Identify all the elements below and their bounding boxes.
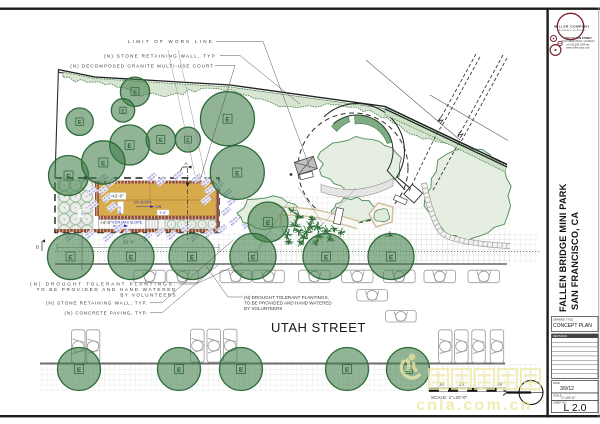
svg-text:FALLEN BRIDGE MINI PARK: FALLEN BRIDGE MINI PARK <box>558 183 568 312</box>
svg-text:www.millercomp.com: www.millercomp.com <box>566 47 589 50</box>
svg-text:(N) STONE RETAINING WALL, TYP.: (N) STONE RETAINING WALL, TYP. <box>104 54 218 59</box>
svg-text:E: E <box>68 254 73 261</box>
svg-text:16'-6": 16'-6" <box>118 205 122 215</box>
svg-text:3/9/12: 3/9/12 <box>560 386 574 392</box>
svg-text:1'-6": 1'-6" <box>159 211 167 215</box>
svg-text:4.5% MAX SLOPE: 4.5% MAX SLOPE <box>112 221 143 225</box>
svg-text:TO BE PROVIDED AND HAND WATERE: TO BE PROVIDED AND HAND WATERED <box>37 287 177 292</box>
svg-text:E: E <box>389 254 394 261</box>
svg-text:E: E <box>235 170 240 177</box>
svg-text:BY VOLUNTEERS: BY VOLUNTEERS <box>244 306 282 311</box>
svg-text:(N) CONCRETE PAVING, TYP.: (N) CONCRETE PAVING, TYP. <box>65 311 148 316</box>
svg-text:E: E <box>239 367 244 374</box>
svg-text:E: E <box>101 160 106 167</box>
svg-text:E: E <box>129 254 134 261</box>
svg-text:E: E <box>77 367 82 374</box>
svg-text:10.5: 10.5 <box>80 210 84 216</box>
svg-text:E: E <box>78 120 82 126</box>
svg-text:(N) DROUGHT TOLERANT PLANTINGS: (N) DROUGHT TOLERANT PLANTINGS, <box>244 295 329 300</box>
svg-text:TO BE PROVIDED AND HAND WATERE: TO BE PROVIDED AND HAND WATERED <box>244 301 332 306</box>
svg-text:landscape architects: landscape architects <box>558 29 586 32</box>
svg-text:cnla.com.cn: cnla.com.cn <box>416 397 533 414</box>
svg-text:MILLER COMPANY: MILLER COMPANY <box>554 25 590 29</box>
svg-text:E: E <box>266 220 271 227</box>
svg-text:DRAWING TITLE: DRAWING TITLE <box>553 318 573 322</box>
svg-text:(N) DROUGHT TOLERANT PLANTINGS: (N) DROUGHT TOLERANT PLANTINGS, <box>30 282 177 287</box>
svg-text:E: E <box>177 367 182 374</box>
svg-text:E: E <box>127 143 132 150</box>
svg-text:E: E <box>225 117 230 124</box>
svg-text:E: E <box>324 254 329 261</box>
svg-text:E: E <box>121 109 124 114</box>
svg-text:+4'-0": +4'-0" <box>100 220 112 225</box>
svg-text:LIMIT OF WORK LINE: LIMIT OF WORK LINE <box>128 39 214 44</box>
svg-text:L 2.0: L 2.0 <box>564 402 587 414</box>
svg-text:E: E <box>66 173 71 180</box>
svg-text:(N) DECOMPOSED GRANITE MULTI-U: (N) DECOMPOSED GRANITE MULTI-USE COURT <box>70 64 214 69</box>
svg-text:E: E <box>251 254 256 261</box>
svg-text:1"=20'-0": 1"=20'-0" <box>561 396 576 400</box>
svg-text:DN: DN <box>156 205 162 209</box>
svg-text:REVISIONS: REVISIONS <box>553 334 567 338</box>
svg-text:B: B <box>36 245 39 250</box>
svg-text:42'-0": 42'-0" <box>112 194 124 199</box>
svg-text:UTAH STREET: UTAH STREET <box>271 320 366 335</box>
svg-text:E: E <box>190 254 195 261</box>
svg-text:(N) STONE RETAINING WALL, TYP.: (N) STONE RETAINING WALL, TYP. <box>46 301 148 306</box>
svg-text:E: E <box>159 138 163 144</box>
svg-text:CONCEPT PLAN: CONCEPT PLAN <box>553 323 592 329</box>
svg-text:SAN FRANCISCO, CA: SAN FRANCISCO, CA <box>570 211 580 310</box>
svg-text:E: E <box>345 367 350 374</box>
svg-text:E: E <box>133 90 137 96</box>
svg-text:DATE: DATE <box>553 381 560 385</box>
svg-text:2% SLOPE: 2% SLOPE <box>134 200 153 204</box>
